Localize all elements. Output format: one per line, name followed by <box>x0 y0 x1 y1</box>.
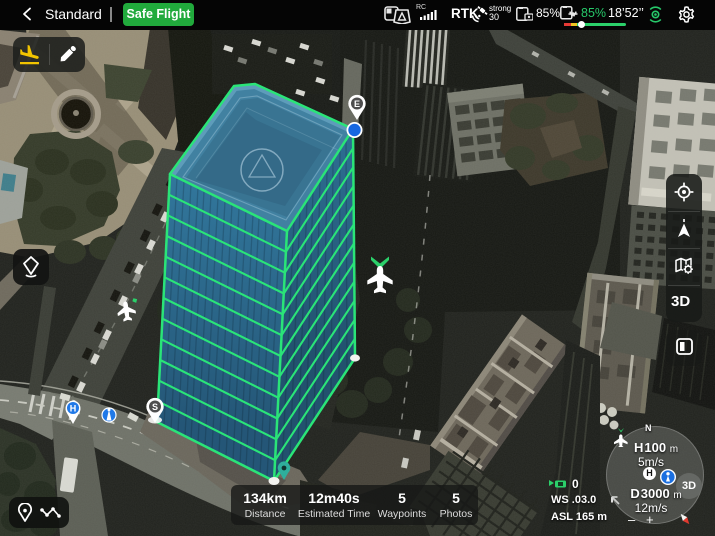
svg-text:E: E <box>354 99 360 109</box>
svg-text:H: H <box>70 404 77 414</box>
svg-text:S: S <box>152 402 158 412</box>
